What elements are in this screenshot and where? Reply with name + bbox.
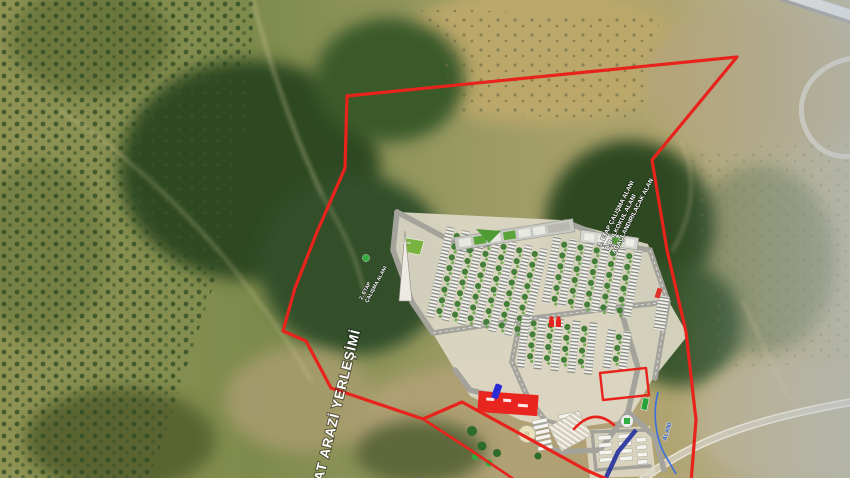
tree-icon — [363, 255, 370, 262]
red-service-building — [477, 391, 538, 416]
atmospheric-haze — [670, 0, 850, 478]
aerial-site-plan-image: KAT ARAZİ YERLEŞİMİ 2. ETAP ÇALIŞMA ALAN… — [0, 0, 850, 478]
helipad-circle-icon — [621, 415, 634, 428]
scene-canvas: KAT ARAZİ YERLEŞİMİ 2. ETAP ÇALIŞMA ALAN… — [0, 0, 850, 478]
